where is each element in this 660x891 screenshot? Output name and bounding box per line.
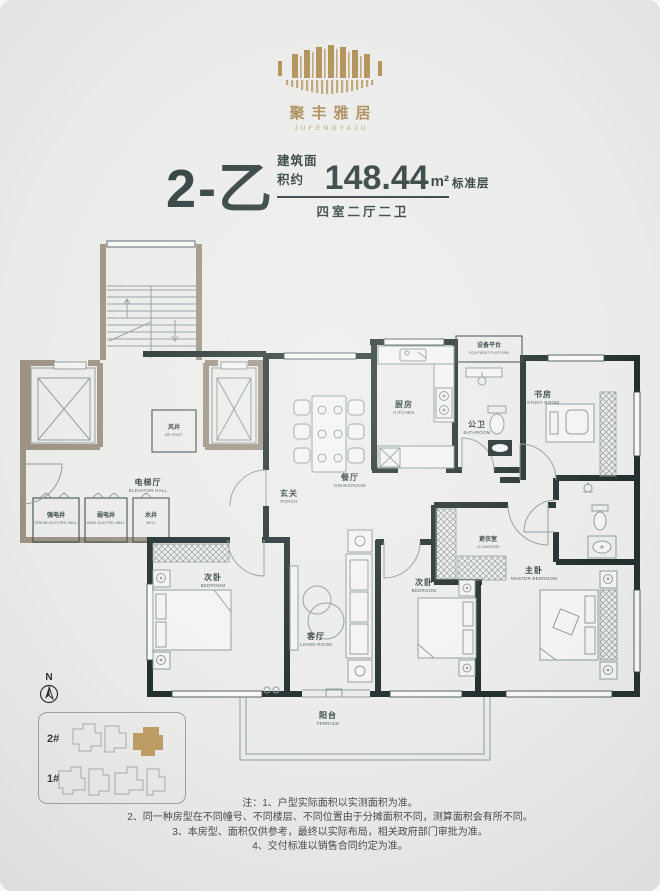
note-line-2: 2、同一种房型在不同幢号、不同楼层、不同位置由于分摊面积不同，测算面积会有所不同… xyxy=(0,811,660,825)
room-label-living-room: 客厅LIVING ROOM xyxy=(300,632,332,648)
room-label-porch: 玄关PORCH xyxy=(280,489,298,505)
elevator-right xyxy=(212,362,256,443)
disclaimer-notes: 注：1、户型实际面积以实测面积为准。 2、同一种房型在不同幢号、不同楼层、不同位… xyxy=(0,797,660,855)
room-label-strong-electric-well: 强电井STRONG ELECTRIC WELL xyxy=(32,513,80,525)
room-label-terrace: 阳台TERRACE xyxy=(317,711,340,727)
site-plan: 2# 1# xyxy=(38,712,186,804)
room-label-kitchen: 厨房KITCHEN xyxy=(393,400,414,416)
public-bathroom-fixtures xyxy=(466,368,512,456)
room-label-bathroom: 公卫BATHROOM xyxy=(463,420,490,436)
compass: N xyxy=(36,672,62,710)
room-label-study-room: 书房STUDY ROOM xyxy=(527,390,559,406)
room-label-dining-room: 餐厅DININGROOM xyxy=(334,473,366,489)
compass-north-label: N xyxy=(36,672,62,683)
room-label-bedroom-center: 次卧BEDROOM xyxy=(412,578,437,594)
room-label-master-bedroom: 主卧MASTER BEDROOM xyxy=(511,566,557,582)
floorplan-page: 聚丰雅居 JUFENGYAJU 2-乙 建筑面积约 148.44 m² 四室二厅… xyxy=(0,0,660,891)
dining-set xyxy=(294,396,364,472)
room-label-air-shaft: 风井AIR SHAFT xyxy=(164,425,184,437)
room-label-equipment-platform: 设备平台EQUIPMENT PLATFORM xyxy=(467,343,511,355)
staircase xyxy=(107,286,196,358)
master-bathroom-fixtures xyxy=(583,482,616,558)
center-bed xyxy=(418,580,476,676)
living-room-furniture xyxy=(290,530,372,682)
study-furniture xyxy=(546,404,594,442)
elevator-left xyxy=(31,362,95,443)
compass-icon xyxy=(38,683,60,705)
note-line-3: 3、本房型、面积仅供参考，最终以实际布局，相关政府部门审批为准。 xyxy=(0,826,660,840)
room-label-cloakroom: 更衣室CLOAKROOM xyxy=(476,537,501,549)
highlighted-unit-building xyxy=(133,727,163,756)
kitchen-fixtures xyxy=(378,346,454,468)
room-label-elevator-hall: 电梯厅ELEVATOR HALL xyxy=(129,478,167,494)
room-label-bedroom-left: 次卧BEDROOM xyxy=(201,573,226,589)
site-plan-buildings xyxy=(39,713,185,803)
room-label-well: 水井WELL xyxy=(145,513,157,525)
note-line-4: 4、交付标准以销售合同约定为准。 xyxy=(0,840,660,854)
room-label-weak-electric-well: 弱电井WEAK ELECTRIC WELL xyxy=(85,513,128,525)
note-line-1: 注：1、户型实际面积以实测面积为准。 xyxy=(0,797,660,811)
terrace-outline xyxy=(240,687,490,760)
